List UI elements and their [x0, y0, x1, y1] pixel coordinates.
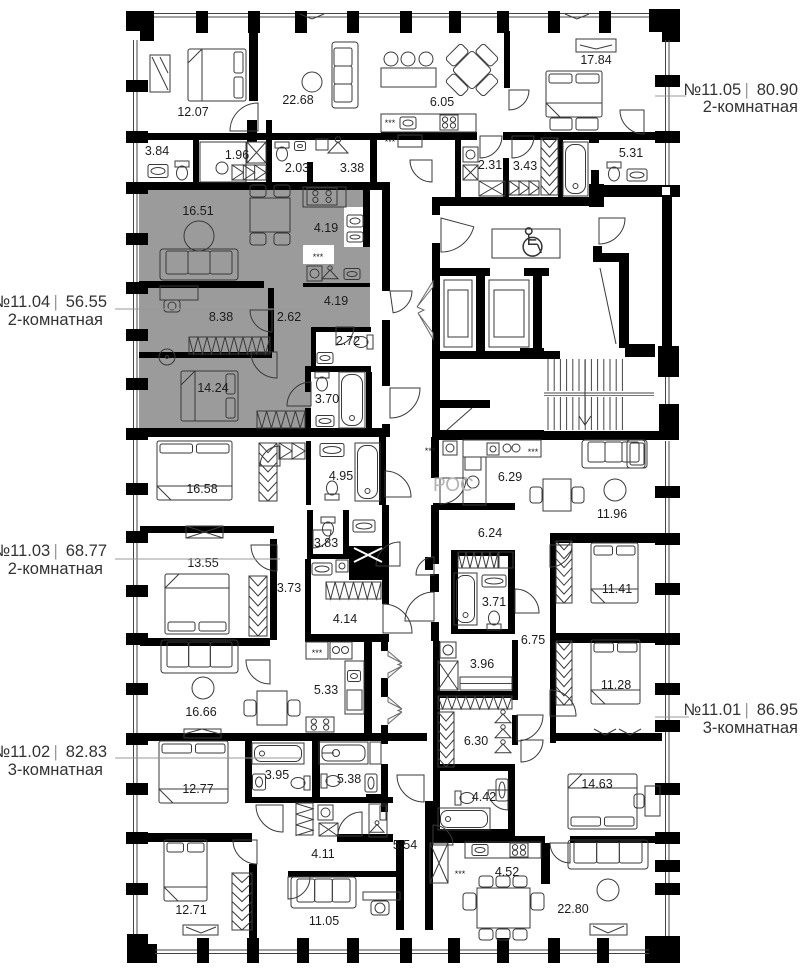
svg-text:3.84: 3.84 [145, 144, 169, 158]
svg-text:11.05: 11.05 [309, 914, 339, 928]
svg-text:№11.01 | 86.95: №11.01 | 86.95 [683, 701, 798, 719]
svg-text:3.70: 3.70 [315, 392, 339, 406]
svg-text:№11.03 | 68.77: №11.03 | 68.77 [0, 542, 107, 560]
svg-text:17.84: 17.84 [580, 53, 611, 67]
svg-text:2-комнатная: 2-комнатная [8, 311, 103, 329]
svg-text:***: *** [455, 869, 466, 879]
svg-text:4.19: 4.19 [324, 294, 348, 308]
svg-text:№11.02 | 82.83: №11.02 | 82.83 [0, 743, 107, 761]
svg-text:16.51: 16.51 [182, 204, 213, 218]
svg-text:2-комнатная: 2-комнатная [703, 98, 798, 116]
svg-text:11.41: 11.41 [602, 582, 632, 596]
svg-text:2-комнатная: 2-комнатная [8, 560, 103, 578]
svg-text:4.11: 4.11 [311, 847, 334, 861]
svg-text:№11.05 | 80.90: №11.05 | 80.90 [683, 81, 798, 99]
svg-text:3.43: 3.43 [513, 159, 537, 173]
svg-text:2.62: 2.62 [277, 310, 301, 324]
svg-text:16.66: 16.66 [185, 705, 216, 719]
svg-text:5.38: 5.38 [337, 772, 361, 786]
svg-text:***: *** [385, 137, 396, 147]
svg-text:***: *** [312, 648, 323, 658]
svg-text:3-комнатная: 3-комнатная [8, 761, 103, 779]
svg-text:***: *** [385, 118, 396, 128]
svg-text:8.38: 8.38 [209, 310, 233, 324]
svg-text:№11.04 | 56.55: №11.04 | 56.55 [0, 293, 107, 311]
svg-text:2.72: 2.72 [336, 334, 360, 348]
svg-text:1.96: 1.96 [225, 148, 249, 162]
svg-text:2.31: 2.31 [478, 158, 502, 172]
svg-text:6.24: 6.24 [478, 526, 502, 540]
svg-text:4.19: 4.19 [314, 221, 338, 235]
svg-text:5.31: 5.31 [619, 146, 643, 160]
svg-text:4.14: 4.14 [333, 612, 357, 626]
svg-text:3.73: 3.73 [277, 581, 301, 595]
svg-text:3.83: 3.83 [314, 536, 338, 550]
svg-text:14.63: 14.63 [581, 777, 612, 791]
svg-text:5.33: 5.33 [314, 683, 338, 697]
svg-text:11.96: 11.96 [597, 507, 627, 521]
svg-text:5.54: 5.54 [393, 838, 417, 852]
svg-text:6.05: 6.05 [430, 95, 454, 109]
svg-text:22.68: 22.68 [282, 93, 313, 107]
svg-text:4.95: 4.95 [329, 469, 353, 483]
svg-text:***: *** [425, 446, 436, 456]
svg-text:16.58: 16.58 [186, 482, 217, 496]
svg-text:***: *** [313, 252, 324, 262]
svg-text:3.96: 3.96 [470, 657, 494, 671]
svg-text:6.75: 6.75 [521, 633, 545, 647]
svg-text:12.71: 12.71 [175, 903, 206, 917]
svg-text:3.71: 3.71 [482, 595, 506, 609]
svg-text:3.95: 3.95 [265, 768, 289, 782]
svg-text:РОС: РОС [433, 475, 474, 496]
svg-text:12.77: 12.77 [182, 782, 213, 796]
svg-text:3.38: 3.38 [340, 161, 364, 175]
svg-text:13.55: 13.55 [187, 556, 218, 570]
svg-text:14.24: 14.24 [197, 381, 228, 395]
svg-text:11.28: 11.28 [601, 678, 631, 692]
svg-text:***: *** [528, 447, 539, 457]
svg-text:2.03: 2.03 [285, 161, 309, 175]
svg-text:6.30: 6.30 [464, 734, 488, 748]
svg-text:12.07: 12.07 [177, 105, 208, 119]
svg-text:3-комнатная: 3-комнатная [703, 719, 798, 737]
svg-text:22.80: 22.80 [557, 902, 588, 916]
svg-text:4.52: 4.52 [495, 865, 519, 879]
svg-text:6.29: 6.29 [498, 470, 522, 484]
svg-text:4.42: 4.42 [472, 790, 496, 804]
